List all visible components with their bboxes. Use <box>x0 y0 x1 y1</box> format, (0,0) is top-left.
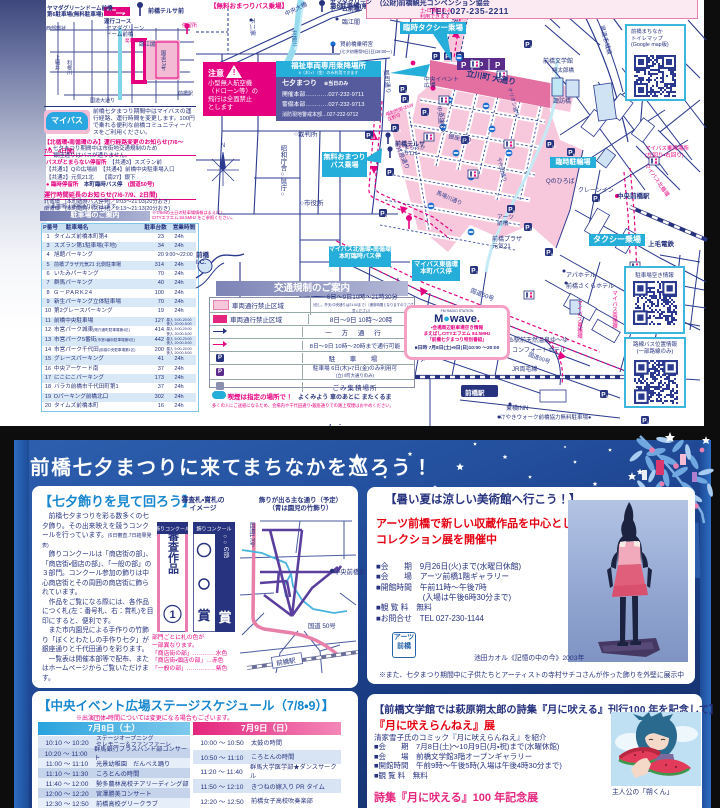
svg-text:賞: 賞 <box>197 608 210 623</box>
svg-text:飾りコンクール: 飾りコンクール <box>196 526 231 533</box>
svg-text:1: 1 <box>169 609 175 621</box>
svg-text:○○の部: ○○の部 <box>222 534 229 559</box>
svg-text:賞: 賞 <box>218 610 231 625</box>
svg-text:審査作品: 審査作品 <box>167 529 181 575</box>
